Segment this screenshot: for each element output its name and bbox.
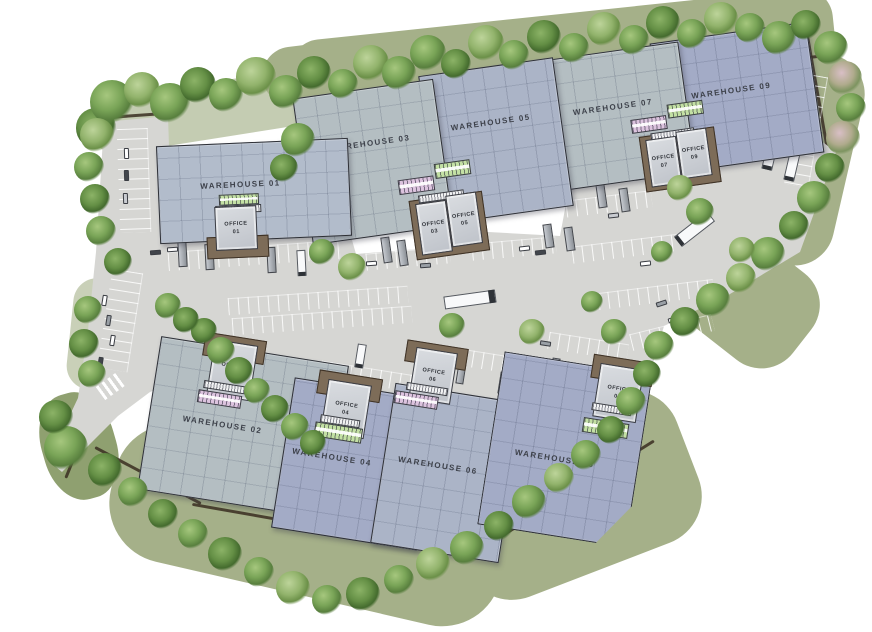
tree-icon: [644, 331, 675, 362]
truck-icon: [296, 250, 306, 276]
office-09-canopy-icon: [666, 100, 704, 119]
tree-icon: [173, 307, 198, 332]
office-01: OFFICE 01: [214, 205, 258, 251]
car-icon: [124, 170, 129, 181]
tree-icon: [309, 239, 334, 264]
tree-icon: [416, 547, 450, 581]
tree-icon: [346, 577, 380, 611]
car-icon: [124, 148, 129, 159]
tree-icon: [587, 12, 621, 46]
car-icon: [150, 250, 161, 256]
office-01-block: OFFICE 01: [205, 191, 272, 260]
office-01-label: OFFICE: [224, 221, 247, 228]
tree-icon: [281, 123, 315, 157]
tree-icon: [338, 253, 366, 281]
tree-icon: [104, 248, 132, 276]
parking-stalls: [117, 128, 152, 233]
tree-icon: [270, 154, 298, 182]
warehouse-01-label: WAREHOUSE 01: [200, 179, 281, 191]
tree-icon: [527, 20, 561, 54]
tree-icon: [312, 585, 343, 616]
tree-icon: [696, 283, 730, 317]
tree-icon: [78, 360, 106, 388]
tree-icon: [826, 121, 860, 155]
trailer-icon: [542, 223, 554, 248]
tree-icon: [39, 400, 73, 434]
tree-icon: [512, 485, 546, 519]
tree-icon: [300, 430, 325, 455]
tree-icon: [814, 31, 848, 65]
tree-icon: [836, 93, 867, 124]
tree-icon: [450, 531, 484, 565]
tree-icon: [686, 198, 714, 226]
tree-icon: [80, 118, 114, 152]
tree-icon: [208, 537, 242, 571]
tree-icon: [597, 416, 625, 444]
tree-icon: [704, 2, 738, 36]
tree-icon: [828, 61, 862, 95]
tree-icon: [729, 237, 754, 262]
tree-icon: [74, 152, 105, 183]
car-icon: [123, 193, 128, 204]
warehouse-06-label: WAREHOUSE 06: [397, 454, 478, 475]
tree-icon: [633, 360, 661, 388]
car-icon: [167, 247, 178, 253]
tree-icon: [797, 181, 831, 215]
tree-icon: [667, 175, 692, 200]
office-09: OFFICE 09: [675, 128, 712, 180]
office-04-block: OFFICE 04: [299, 368, 391, 475]
office-03-canopy-icon: [398, 175, 436, 195]
tree-icon: [276, 571, 310, 605]
tree-icon: [382, 56, 416, 90]
trailer-icon: [177, 241, 187, 267]
site-plan: WAREHOUSE 09 WAREHOUSE 07 WAREHOUSE 05 W…: [0, 0, 872, 632]
tree-icon: [74, 296, 102, 324]
tree-icon: [88, 453, 122, 487]
tree-icon: [601, 319, 626, 344]
tree-icon: [439, 313, 464, 338]
office-03-05-block: OFFICE 03 OFFICE 05: [391, 152, 498, 266]
tree-icon: [646, 6, 680, 40]
office-05-canopy-icon: [434, 159, 472, 179]
warehouse-05-label: WAREHOUSE 05: [450, 112, 531, 132]
tree-icon: [751, 237, 785, 271]
tree-icon: [297, 56, 331, 90]
car-icon: [366, 261, 377, 267]
office-06-block: OFFICE 06: [387, 338, 478, 441]
tree-icon: [519, 319, 544, 344]
